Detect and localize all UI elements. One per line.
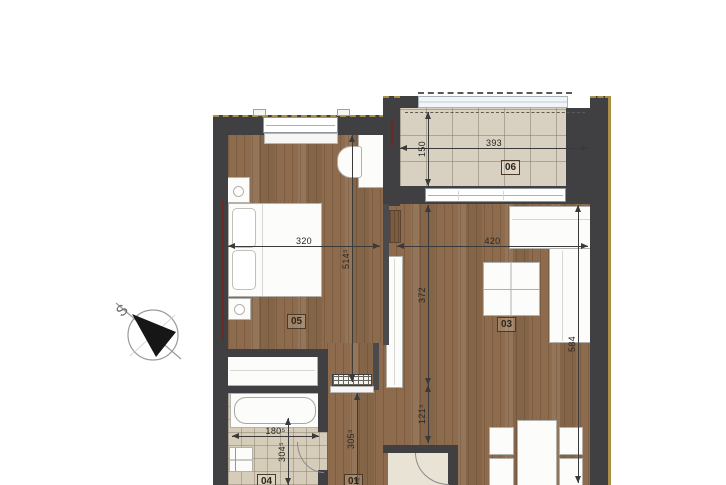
dim-bedroom-width: 320: [228, 246, 380, 247]
nightstand: [227, 177, 250, 203]
sink: [229, 447, 253, 472]
bathroom-right-wall: [318, 412, 328, 432]
bedroom-window: [263, 117, 338, 133]
dining-table: [517, 420, 557, 485]
balcony-threshold-dashed-line: [405, 112, 585, 113]
bathtub: [230, 393, 320, 428]
dim-label: 320: [296, 236, 312, 246]
dining-chair: [489, 427, 514, 455]
sofa-chaise: [549, 248, 593, 343]
compass-north-label: S: [113, 301, 132, 320]
room-label-hall: 01: [344, 474, 363, 485]
dim-bathroom-width: 180⁵: [232, 436, 319, 437]
wall-stub: [318, 353, 328, 412]
room-label-living: 03: [497, 317, 516, 332]
balcony-overhang-dashed-line: [418, 92, 572, 94]
desk: [358, 133, 385, 188]
room-label-bathroom: 04: [257, 474, 276, 485]
bedroom-bottom-wall: [213, 349, 328, 357]
dim-hall-depth: 305⁵: [357, 393, 358, 485]
dim-label: 150: [417, 141, 427, 157]
wardrobe: [227, 355, 318, 386]
window-sill: [264, 133, 338, 144]
north-arrow-compass: S: [108, 293, 190, 371]
dim-label: 304⁵: [277, 442, 287, 462]
pier-block: [337, 109, 350, 116]
dim-bathroom-depth: 304⁵: [288, 418, 289, 485]
bathroom-top-wall: [228, 386, 328, 393]
dim-living-depth-upper: 372: [428, 205, 429, 385]
dining-chair: [559, 427, 583, 455]
radiator-shelf: [330, 386, 374, 393]
dim-label: 420: [485, 236, 501, 246]
dim-label: 180⁵: [266, 426, 286, 436]
pier-block: [253, 109, 266, 116]
shelf: [389, 210, 401, 243]
coffee-table: [483, 262, 540, 316]
balcony-glass-railing: [418, 96, 568, 108]
dining-chair: [489, 458, 514, 485]
double-bed: [228, 203, 322, 297]
dim-label: 121⁵: [417, 404, 427, 424]
balcony-rail-corner: [400, 96, 418, 108]
dim-bedroom-depth: 514⁵: [352, 135, 353, 382]
section-mark: [222, 200, 224, 340]
dim-label: 305⁵: [346, 429, 356, 449]
wc-wall-vertical: [448, 445, 458, 485]
hallway-floor: [327, 343, 389, 485]
outer-wall-left: [213, 115, 228, 485]
desk-chair: [337, 146, 362, 178]
partition-bedroom-living: [383, 204, 389, 345]
dim-opening: 121⁵: [428, 385, 429, 443]
room-label-balcony: 06: [501, 160, 520, 175]
dim-label: 514⁵: [341, 249, 351, 269]
balcony-door: [425, 188, 566, 202]
nightstand: [228, 298, 251, 320]
wc-wall-horizontal: [383, 445, 452, 453]
dim-label: 584: [567, 336, 577, 352]
partition-hall: [373, 343, 379, 390]
dim-label: 393: [486, 138, 502, 148]
dim-living-depth-total: 584: [578, 205, 579, 483]
section-mark: [391, 120, 393, 148]
dim-label: 372: [417, 287, 427, 303]
floor-plan-canvas: 393 150 320 514⁵ 420 372 121⁵ 584 180⁵ 3…: [0, 0, 726, 485]
dim-living-width: 420: [397, 246, 588, 247]
room-label-bedroom: 05: [287, 314, 306, 329]
dim-balcony-depth: 150: [428, 112, 429, 186]
outer-wall-right: [590, 96, 611, 485]
